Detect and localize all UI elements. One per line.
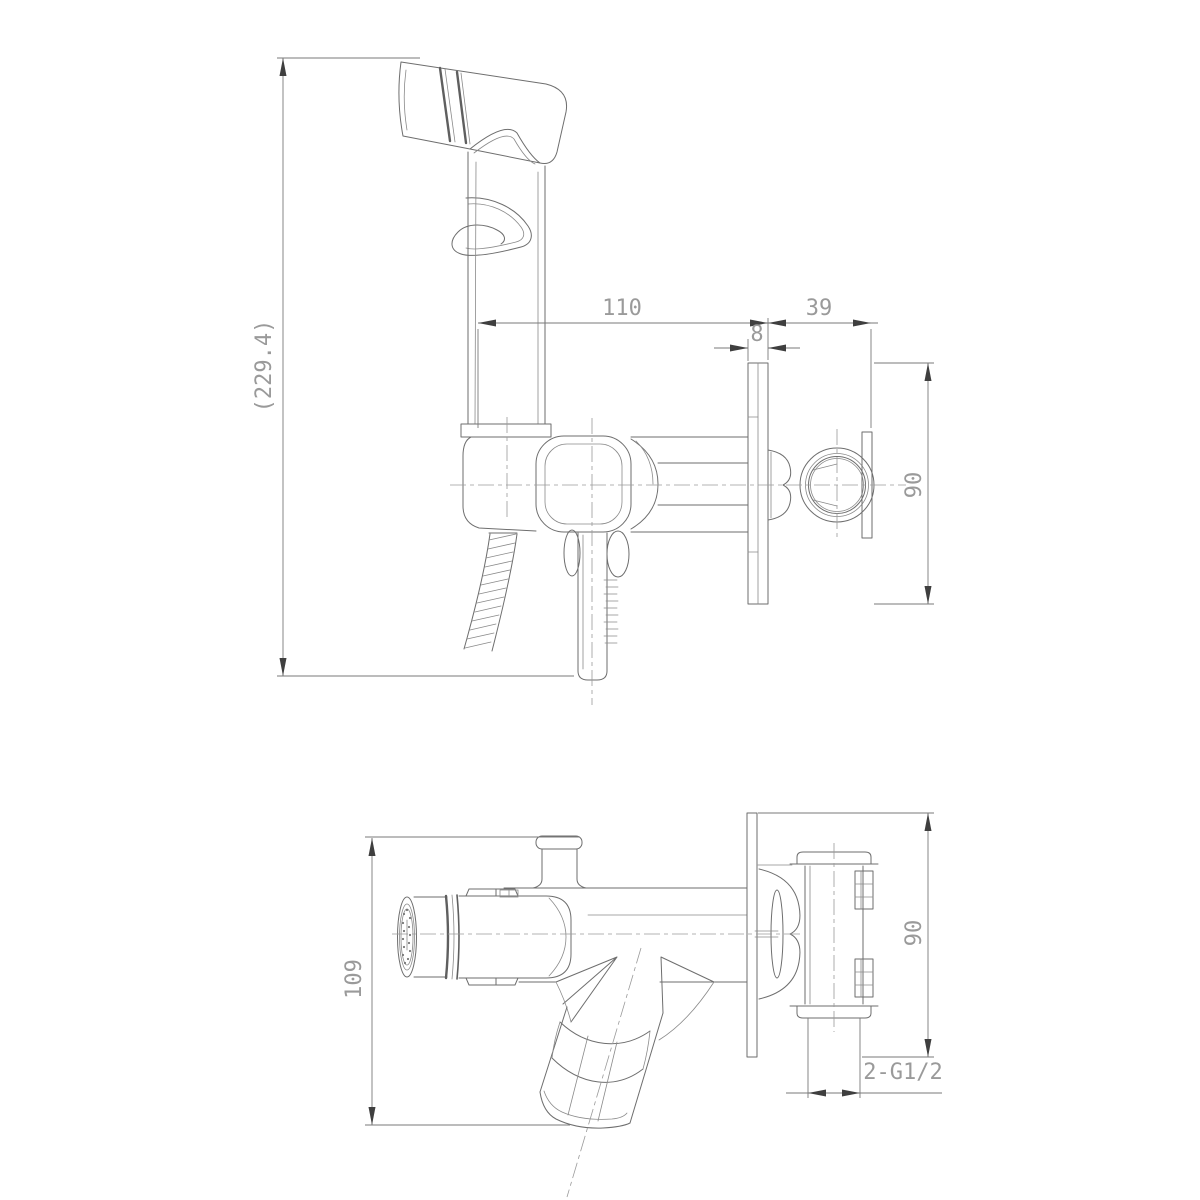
holder-body — [463, 436, 748, 532]
dim-overall-depth-label: 109 — [342, 959, 367, 999]
holder-bracket-plan — [533, 836, 586, 888]
shower-hose — [464, 533, 517, 651]
dim-connections-label: 2-G1/2 — [863, 1060, 942, 1085]
sprayer-head — [399, 62, 567, 164]
sprayer-body-plan — [459, 889, 571, 985]
dimension-plate-size-side: 90 — [874, 363, 934, 604]
dim-plate-thickness-label: 8 — [750, 322, 763, 347]
dim-plate-size-plan-label: 90 — [902, 920, 927, 947]
sprayer-handle — [461, 152, 551, 437]
drawing-canvas: (229.4) 110 39 8 — [0, 0, 1200, 1200]
dim-overall-height-label: (229.4) — [252, 320, 277, 413]
trigger-loop — [452, 198, 531, 256]
dimension-plate-size-plan: 90 — [758, 813, 934, 1057]
plan-view-centerlines — [392, 920, 800, 950]
dimension-overall-depth: 109 — [342, 837, 580, 1125]
handle-plan — [540, 948, 714, 1197]
side-view: (229.4) 110 39 8 — [252, 58, 934, 705]
dimension-plate-thickness: 8 — [714, 322, 800, 361]
control-lever — [564, 530, 629, 680]
dimension-connections: 2-G1/2 — [786, 1018, 943, 1098]
plan-view: 109 90 2-G1/2 — [342, 813, 943, 1197]
dimension-spout-depth: 110 — [478, 296, 768, 428]
side-view-centerlines — [450, 417, 906, 705]
tee-fitting-plan — [755, 843, 878, 1032]
technical-drawing: (229.4) 110 39 8 — [0, 0, 1200, 1200]
body-barrel-plan — [504, 888, 747, 982]
dim-wall-box-depth-label: 39 — [806, 296, 833, 321]
dimension-overall-height: (229.4) — [252, 58, 574, 676]
dimension-wall-box-depth: 39 — [768, 296, 878, 428]
wall-plate-plan — [747, 813, 792, 1057]
dim-plate-size-side-label: 90 — [902, 472, 927, 499]
wall-plate-side — [748, 363, 768, 604]
dim-spout-depth-label: 110 — [602, 296, 642, 321]
